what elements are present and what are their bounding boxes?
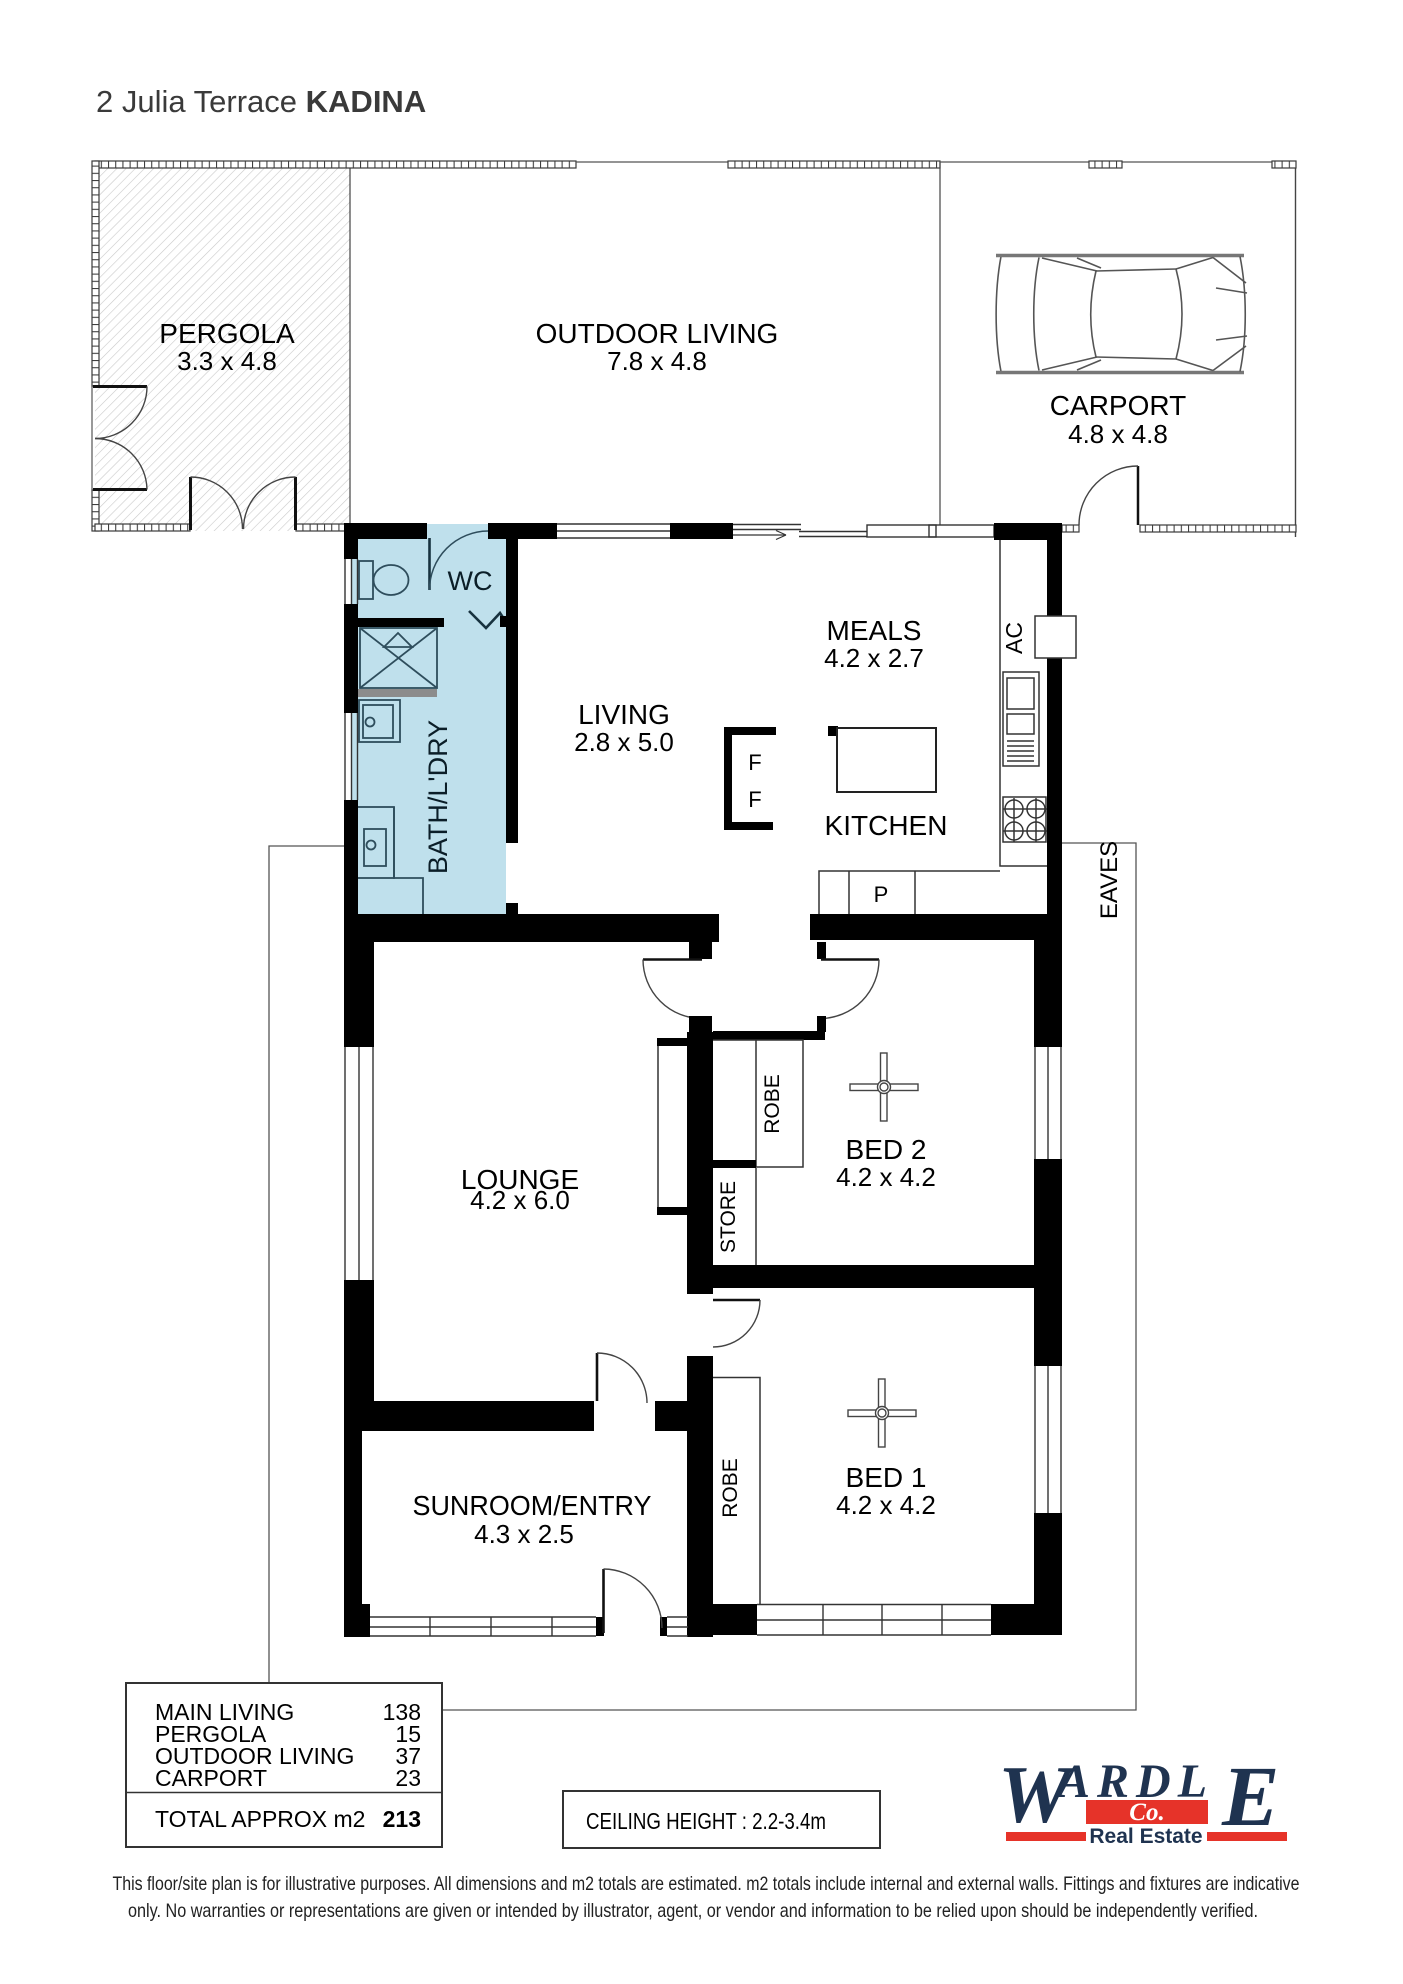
- svg-text:2 Julia Terrace KADINA: 2 Julia Terrace KADINA: [96, 84, 426, 119]
- svg-text:Co.: Co.: [1129, 1799, 1164, 1826]
- svg-text:KITCHEN: KITCHEN: [825, 810, 948, 841]
- svg-text:CARPORT: CARPORT: [155, 1765, 267, 1791]
- svg-text:STORE: STORE: [717, 1181, 740, 1253]
- svg-text:ROBE: ROBE: [719, 1458, 742, 1518]
- svg-text:EAVES: EAVES: [1096, 841, 1123, 919]
- svg-text:F: F: [748, 750, 761, 775]
- svg-text:E: E: [1221, 1748, 1279, 1844]
- svg-text:4.2 x 6.0: 4.2 x 6.0: [470, 1185, 570, 1215]
- svg-text:4.2 x 4.2: 4.2 x 4.2: [836, 1490, 936, 1520]
- svg-text:ROBE: ROBE: [761, 1074, 784, 1134]
- svg-text:7.8 x 4.8: 7.8 x 4.8: [607, 346, 707, 376]
- svg-text:BED 1: BED 1: [846, 1462, 927, 1493]
- svg-text:P: P: [874, 882, 889, 907]
- svg-text:BED 2: BED 2: [846, 1134, 927, 1165]
- svg-text:AC: AC: [1001, 622, 1027, 654]
- svg-text:only. No warranties or represe: only. No warranties or representations a…: [128, 1900, 1258, 1922]
- svg-text:2.8 x 5.0: 2.8 x 5.0: [574, 727, 674, 757]
- svg-text:F: F: [748, 787, 761, 812]
- svg-text:23: 23: [395, 1765, 421, 1791]
- svg-text:TOTAL APPROX m2: TOTAL APPROX m2: [155, 1806, 365, 1832]
- svg-text:CEILING HEIGHT : 2.2-3.4m: CEILING HEIGHT : 2.2-3.4m: [586, 1808, 826, 1834]
- svg-text:LIVING: LIVING: [578, 699, 670, 730]
- svg-text:SUNROOM/ENTRY: SUNROOM/ENTRY: [413, 1490, 652, 1521]
- svg-text:3.3 x 4.8: 3.3 x 4.8: [177, 346, 277, 376]
- svg-text:CARPORT: CARPORT: [1050, 390, 1186, 421]
- svg-text:This floor/site plan is for il: This floor/site plan is for illustrative…: [113, 1873, 1300, 1895]
- svg-text:Real Estate: Real Estate: [1089, 1825, 1202, 1848]
- svg-text:4.3 x 2.5: 4.3 x 2.5: [474, 1519, 574, 1549]
- svg-text:OUTDOOR LIVING: OUTDOOR LIVING: [536, 318, 779, 349]
- svg-text:4.2 x 4.2: 4.2 x 4.2: [836, 1162, 936, 1192]
- svg-text:4.2 x 2.7: 4.2 x 2.7: [824, 643, 924, 673]
- svg-text:213: 213: [383, 1806, 421, 1832]
- svg-text:PERGOLA: PERGOLA: [159, 318, 295, 349]
- svg-text:WC: WC: [448, 566, 493, 596]
- svg-text:4.8 x 4.8: 4.8 x 4.8: [1068, 419, 1168, 449]
- svg-text:BATH/L'DRY: BATH/L'DRY: [423, 720, 453, 874]
- svg-text:MEALS: MEALS: [827, 615, 922, 646]
